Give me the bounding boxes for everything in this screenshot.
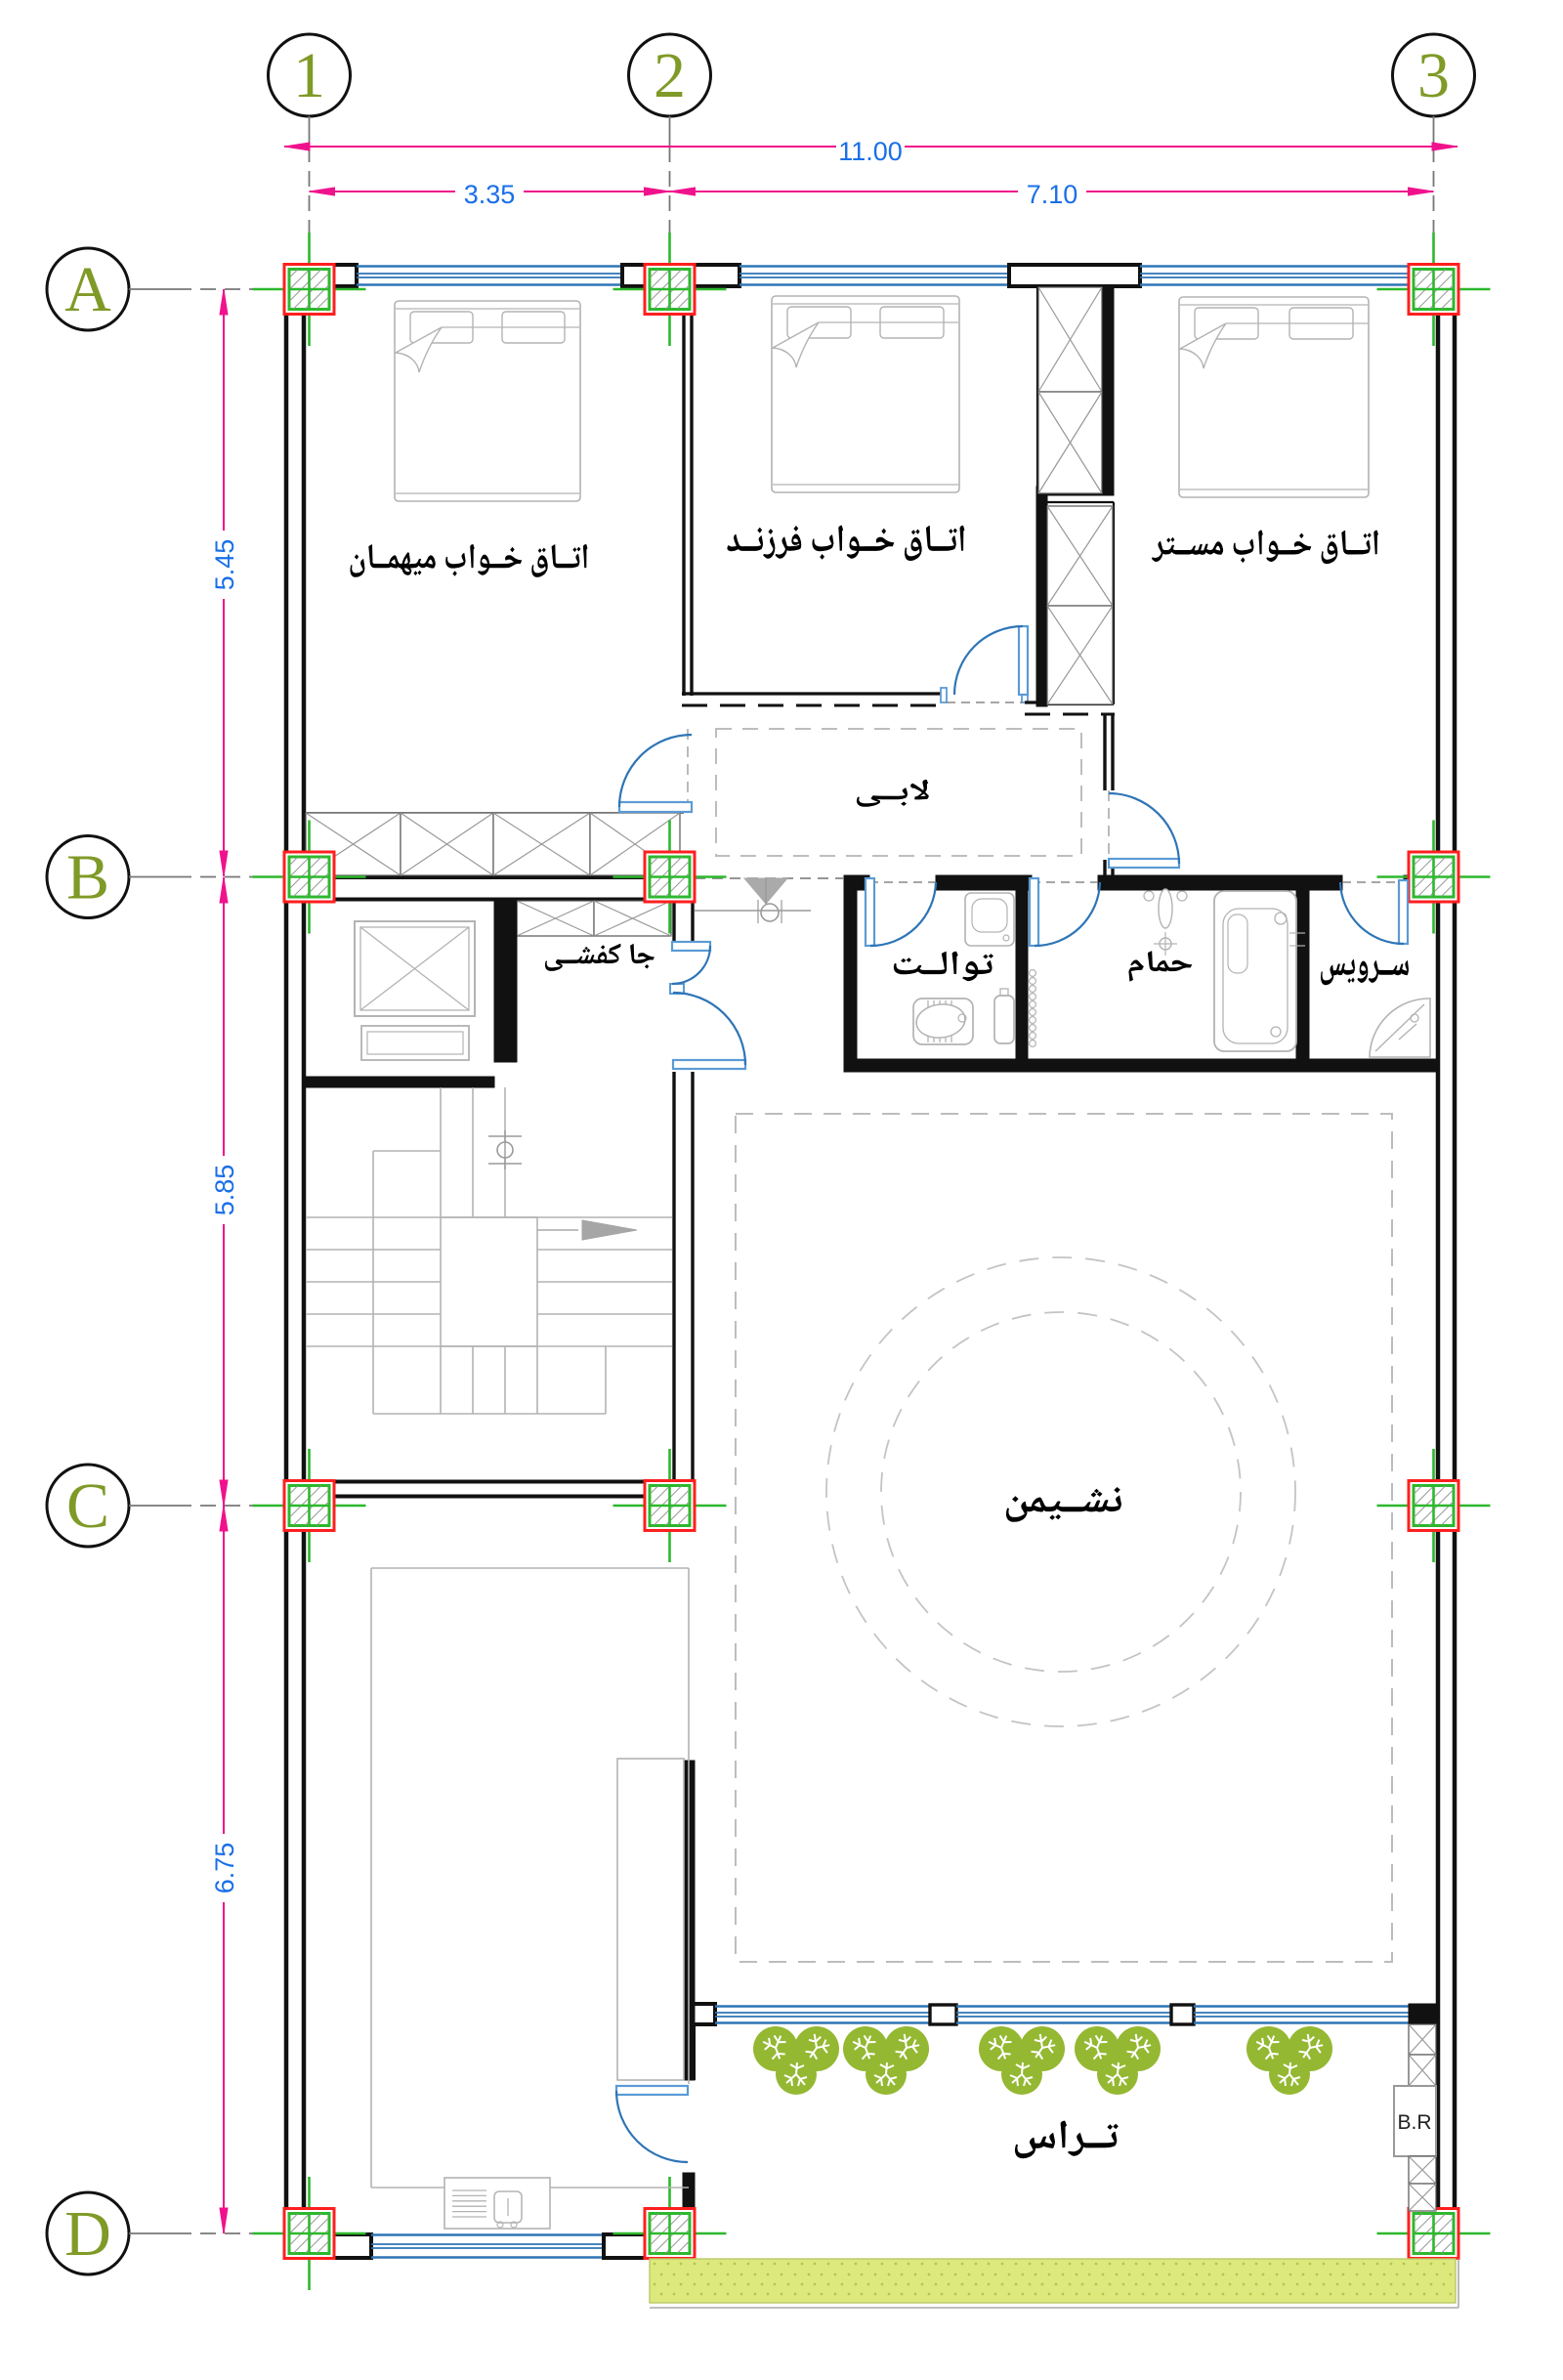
- svg-text:A: A: [64, 254, 111, 325]
- svg-text:6.75: 6.75: [210, 1843, 239, 1894]
- svg-text:D: D: [64, 2198, 111, 2270]
- svg-text:B.R: B.R: [1397, 2111, 1431, 2134]
- svg-text:B: B: [66, 842, 109, 914]
- svg-text:1: 1: [293, 40, 325, 111]
- svg-text:3: 3: [1417, 40, 1450, 111]
- svg-text:3.35: 3.35: [464, 180, 516, 209]
- svg-text:5.85: 5.85: [210, 1165, 239, 1216]
- svg-text:11.00: 11.00: [838, 137, 903, 166]
- svg-text:2: 2: [654, 40, 686, 111]
- svg-text:7.10: 7.10: [1027, 180, 1078, 209]
- svg-text:5.45: 5.45: [210, 539, 239, 591]
- svg-text:C: C: [66, 1470, 109, 1542]
